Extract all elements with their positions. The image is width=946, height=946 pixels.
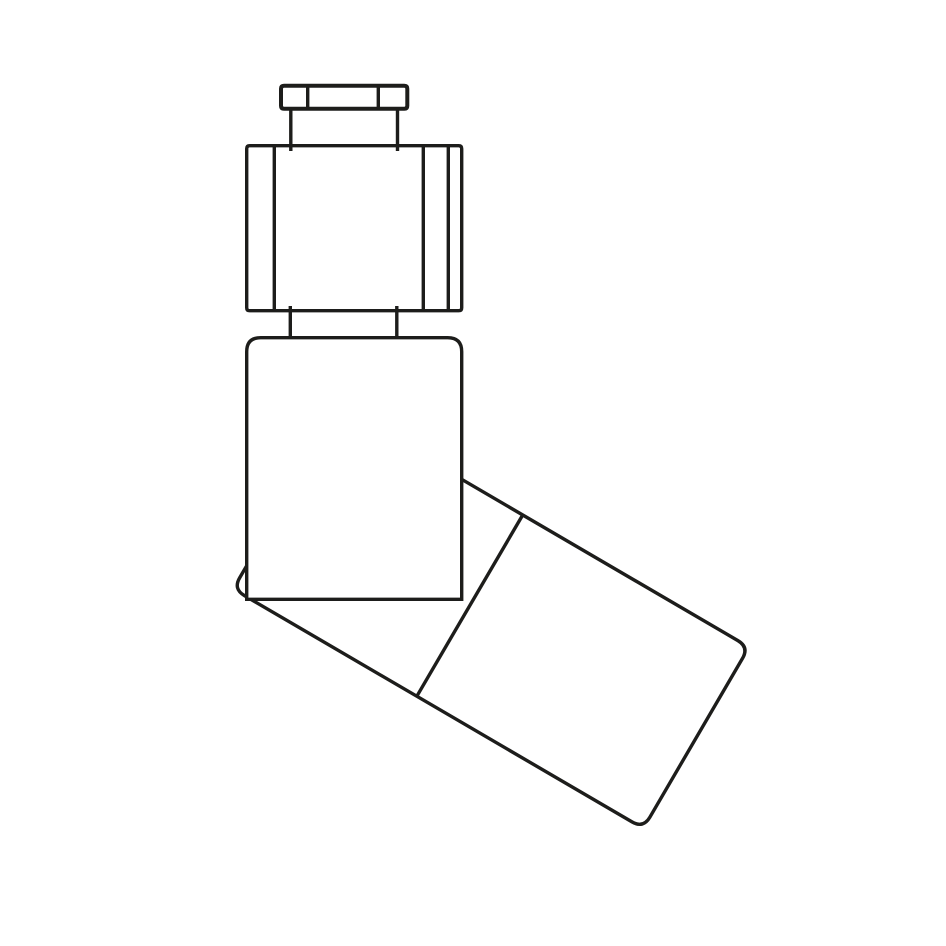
technical-drawing-page [0, 0, 946, 946]
stem-cap-outline [281, 86, 407, 109]
fitting-technical-drawing [0, 0, 946, 946]
hex-nut-outline [247, 146, 462, 311]
main-body-outline [247, 338, 462, 600]
